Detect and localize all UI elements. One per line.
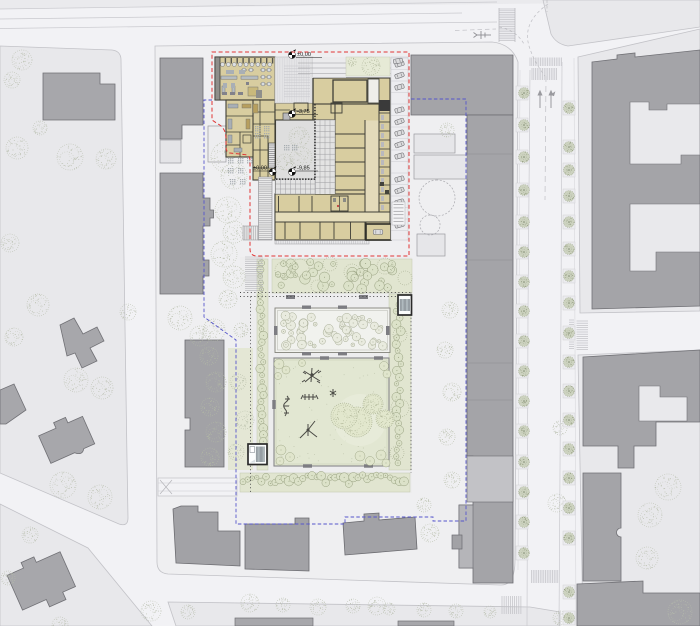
svg-text:-9,85: -9,85 xyxy=(297,166,310,172)
svg-text:-3,75: -3,75 xyxy=(297,109,310,115)
svg-text:±0,00: ±0,00 xyxy=(253,166,267,172)
svg-text:±0,00: ±0,00 xyxy=(297,52,311,58)
